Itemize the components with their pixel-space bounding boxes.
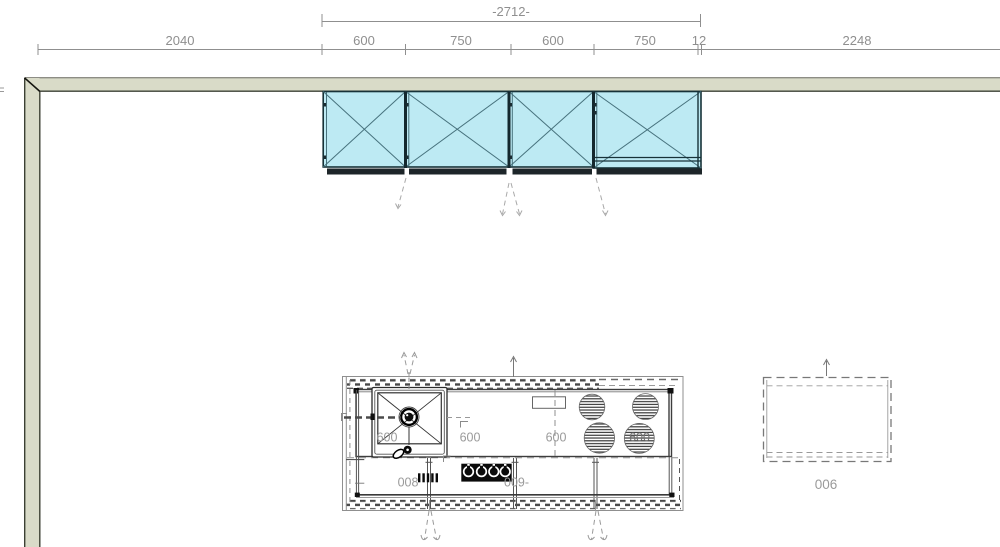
svg-text:2040: 2040 <box>166 33 195 48</box>
svg-text:-2712-: -2712- <box>492 4 530 19</box>
svg-text:008: 008 <box>398 476 419 490</box>
svg-text:600: 600 <box>542 33 564 48</box>
svg-text:600: 600 <box>460 431 481 445</box>
svg-text:006: 006 <box>815 477 838 492</box>
svg-text:600: 600 <box>377 431 398 445</box>
svg-text:12: 12 <box>692 33 706 48</box>
svg-text:600: 600 <box>629 431 650 445</box>
svg-text:2248: 2248 <box>843 33 872 48</box>
svg-text:750: 750 <box>634 33 656 48</box>
svg-text:009-: 009- <box>504 476 529 490</box>
svg-text:600: 600 <box>546 431 567 445</box>
svg-text:750: 750 <box>450 33 472 48</box>
svg-text:600: 600 <box>353 33 375 48</box>
